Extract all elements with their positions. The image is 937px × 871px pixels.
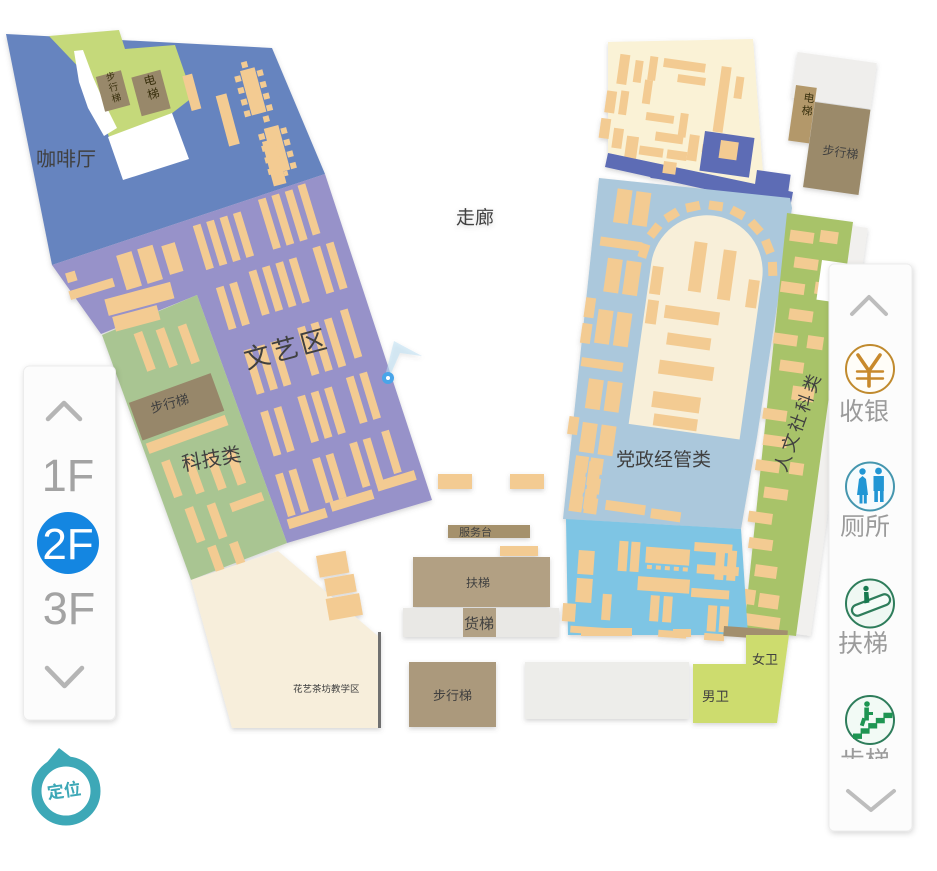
svg-text:2F: 2F: [42, 520, 93, 569]
svg-text:3F: 3F: [43, 583, 96, 634]
svg-text:1F: 1F: [42, 450, 95, 501]
